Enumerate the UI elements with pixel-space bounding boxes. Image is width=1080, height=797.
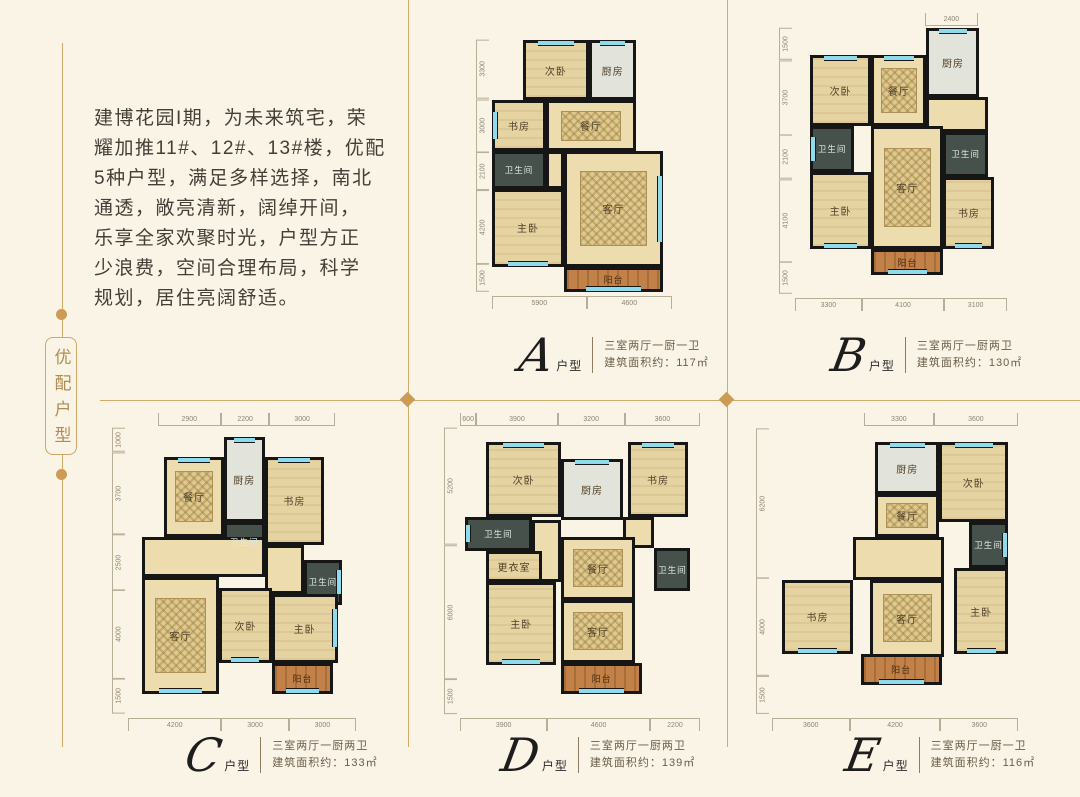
dim-label xyxy=(772,413,864,426)
plan-letter-suffix: 户型 xyxy=(542,757,568,774)
floorplan-a: 次卧厨房书房餐厅卫生间主卧客厅阳台33003000210042001500590… xyxy=(492,40,672,292)
room-bath: 卫生间 xyxy=(969,522,1008,568)
dim-label: 3300 xyxy=(795,298,862,311)
room-living: 客厅 xyxy=(564,151,663,267)
side-tag: 优配户型 xyxy=(45,337,77,455)
room-hall xyxy=(265,545,304,594)
room-bath: 卫生间 xyxy=(465,517,532,551)
room-kitchen: 厨房 xyxy=(224,437,265,523)
intro-line-6: 少浪费，空间合理布局，科学 xyxy=(94,254,374,284)
dim-label: 3300 xyxy=(476,40,489,99)
room-label: 卫生间 xyxy=(818,143,847,155)
room-label: 厨房 xyxy=(581,482,603,497)
window-strip xyxy=(810,137,816,161)
room-bed: 主卧 xyxy=(954,568,1008,654)
dim-label: 4100 xyxy=(779,179,792,262)
room-bath: 卫生间 xyxy=(943,132,988,177)
plan-rooms-spec: 三室两厅一厨一卫 xyxy=(604,338,709,355)
room-label: 阳台 xyxy=(603,273,623,286)
window-strip xyxy=(159,688,202,694)
floorplan-e: 厨房次卧餐厅卫生间书房客厅主卧阳台62004000150036004200360… xyxy=(772,428,1018,714)
dim-label: 600 xyxy=(460,413,476,426)
room-dining: 餐厅 xyxy=(871,55,926,127)
plan-letter: D xyxy=(498,734,542,776)
dim-label: 4100 xyxy=(862,298,944,311)
window-strip xyxy=(332,609,338,647)
dim-label: 1500 xyxy=(779,262,792,294)
dim-label: 1500 xyxy=(756,676,769,714)
room-label: 阳台 xyxy=(592,672,612,685)
plan-label-a: A户型三室两厅一厨一卫建筑面积约：117㎡ xyxy=(520,334,709,376)
room-label: 书房 xyxy=(647,472,669,487)
room-bath: 卫生间 xyxy=(492,151,546,189)
dim-label: 2200 xyxy=(650,718,700,731)
plan-letter-suffix: 户型 xyxy=(869,357,895,374)
dim-label: 4000 xyxy=(112,590,125,679)
room-label: 主卧 xyxy=(510,616,532,631)
intro-line-4: 通透，敞亮清新，阔绰开间， xyxy=(94,194,374,224)
plan-label-divider xyxy=(260,737,261,773)
room-bed: 次卧 xyxy=(486,442,560,516)
room-label: 次卧 xyxy=(513,472,535,487)
dims-left-e: 620040001500 xyxy=(756,428,769,714)
window-strip xyxy=(955,442,993,448)
dims-left-b: 15003700210041001500 xyxy=(779,28,792,294)
dim-label: 4200 xyxy=(476,190,489,264)
room-living: 客厅 xyxy=(871,126,943,248)
room-bed: 书房 xyxy=(782,580,853,654)
room-bed: 书房 xyxy=(492,100,546,150)
dims-bottom-b: 330041003100 xyxy=(795,298,1007,311)
room-bed: 书房 xyxy=(628,442,688,516)
dim-label: 2900 xyxy=(158,413,221,426)
room-living: 客厅 xyxy=(142,577,220,694)
brochure-page: 优配户型 建博花园I期，为未来筑宅，荣耀加推11#、12#、13#楼，优配5种户… xyxy=(0,0,1080,797)
window-strip xyxy=(600,40,624,46)
plan-label-divider xyxy=(905,337,906,373)
room-label: 书房 xyxy=(283,493,305,508)
window-strip xyxy=(178,457,210,463)
room-label: 餐厅 xyxy=(587,561,609,576)
room-bed: 次卧 xyxy=(523,40,590,100)
divider-horizontal xyxy=(100,400,1080,401)
dims-bottom-c: 420030003000 xyxy=(128,718,356,731)
plan-specs: 三室两厅一厨两卫建筑面积约：139㎡ xyxy=(590,738,695,772)
dims-bottom-e: 360042003600 xyxy=(772,718,1018,731)
dim-label: 3200 xyxy=(558,413,625,426)
dims-bottom-d: 390046002200 xyxy=(460,718,700,731)
room-bath: 卫生间 xyxy=(654,548,690,591)
room-label: 书房 xyxy=(958,205,980,220)
room-hall xyxy=(853,537,944,580)
plan-area-spec: 建筑面积约：117㎡ xyxy=(604,355,709,372)
floorplan-c: 餐厅厨房书房卫生间卫生间客厅次卧主卧阳台10003700250040001500… xyxy=(128,428,356,714)
window-strip xyxy=(579,688,624,694)
dim-label: 4600 xyxy=(587,296,672,309)
window-strip xyxy=(879,679,924,685)
dim-label: 3900 xyxy=(476,413,557,426)
divider-vertical-left xyxy=(408,0,409,747)
plan-rooms-spec: 三室两厅一厨两卫 xyxy=(590,738,695,755)
room-label: 阳台 xyxy=(292,672,312,685)
room-label: 阳台 xyxy=(891,663,911,676)
plan-label-divider xyxy=(919,737,920,773)
dim-label: 2100 xyxy=(476,152,489,190)
room-label: 厨房 xyxy=(896,461,918,476)
plan-label-divider xyxy=(578,737,579,773)
window-strip xyxy=(884,55,913,61)
floorplan-d: 次卧厨房书房卫生间更衣室餐厅卫生间主卧客厅阳台52006000150039004… xyxy=(460,428,700,714)
dim-label: 3000 xyxy=(476,99,489,152)
dim-label: 6000 xyxy=(444,545,457,679)
intro-line-7: 规划，居住亮阔舒适。 xyxy=(94,284,374,314)
window-strip xyxy=(642,442,674,448)
room-label: 阳台 xyxy=(897,256,917,269)
intro-line-3: 5种户型，满足多样选择，南北 xyxy=(94,164,374,194)
plan-rooms-spec: 三室两厅一厨两卫 xyxy=(917,338,1022,355)
room-balcony: 阳台 xyxy=(861,654,942,685)
window-strip xyxy=(1002,533,1008,557)
plan-label-b: B户型三室两厅一厨两卫建筑面积约：130㎡ xyxy=(832,334,1022,376)
plan-label-c: C户型三室两厅一厨两卫建筑面积约：133㎡ xyxy=(186,734,378,776)
plan-specs: 三室两厅一厨两卫建筑面积约：133㎡ xyxy=(272,738,377,772)
dims-top-e: 33003600 xyxy=(772,413,1018,426)
dim-label: 2200 xyxy=(221,413,270,426)
window-strip xyxy=(657,176,663,242)
room-label: 厨房 xyxy=(602,63,624,78)
dim-label: 2400 xyxy=(925,13,977,26)
plan-letter-suffix: 户型 xyxy=(224,757,250,774)
intro-line-2: 耀加推11#、12#、13#楼，优配 xyxy=(94,134,374,164)
window-strip xyxy=(824,243,857,249)
dim-label: 5900 xyxy=(492,296,587,309)
window-strip xyxy=(508,261,548,267)
plan-letter-suffix: 户型 xyxy=(883,757,909,774)
room-dining: 餐厅 xyxy=(164,457,223,537)
room-living: 客厅 xyxy=(870,580,944,657)
room-bed: 更衣室 xyxy=(486,551,541,582)
room-label: 卫生间 xyxy=(309,576,338,588)
room-kitchen: 厨房 xyxy=(589,40,636,100)
dim-label: 3700 xyxy=(779,60,792,135)
intro-text: 建博花园I期，为未来筑宅，荣耀加推11#、12#、13#楼，优配5种户型，满足多… xyxy=(94,104,374,314)
plan-letter: C xyxy=(182,734,225,776)
room-bed: 次卧 xyxy=(219,588,271,662)
room-label: 厨房 xyxy=(942,55,964,70)
dim-label: 1000 xyxy=(112,428,125,452)
window-strip xyxy=(336,570,342,594)
room-label: 客厅 xyxy=(896,180,918,195)
dim-label: 3000 xyxy=(289,718,356,731)
dim-label: 5200 xyxy=(444,428,457,545)
dims-bottom-a: 59004600 xyxy=(492,296,672,309)
room-label: 餐厅 xyxy=(580,118,602,133)
room-label: 卫生间 xyxy=(658,564,687,576)
dim-label: 1500 xyxy=(476,264,489,292)
room-label: 次卧 xyxy=(963,475,985,490)
room-living: 客厅 xyxy=(561,600,635,663)
dim-label: 1500 xyxy=(444,679,457,714)
window-strip xyxy=(278,457,310,463)
dim-label: 4600 xyxy=(547,718,650,731)
room-dining: 餐厅 xyxy=(546,100,636,150)
dims-left-a: 33003000210042001500 xyxy=(476,40,489,292)
room-bed: 书房 xyxy=(943,177,994,249)
window-strip xyxy=(955,243,982,249)
room-label: 卫生间 xyxy=(230,536,259,548)
room-label: 餐厅 xyxy=(888,83,910,98)
window-strip xyxy=(575,459,609,465)
ornament-dot-top xyxy=(56,309,67,320)
floorplan-b: 厨房次卧餐厅卫生间客厅卫生间主卧书房阳台15003700210041001500… xyxy=(795,28,1007,294)
dim-label: 3000 xyxy=(269,413,334,426)
dim-label xyxy=(335,413,356,426)
room-label: 客厅 xyxy=(896,611,918,626)
plan-letter: B xyxy=(828,334,869,376)
room-label: 客厅 xyxy=(603,201,625,216)
plan-letter-suffix: 户型 xyxy=(556,357,582,374)
room-kitchen: 厨房 xyxy=(561,459,623,519)
plan-area-spec: 建筑面积约：133㎡ xyxy=(272,755,377,772)
intro-line-1: 建博花园I期，为未来筑宅，荣 xyxy=(94,104,374,134)
window-strip xyxy=(231,657,259,663)
room-kitchen: 厨房 xyxy=(875,442,939,493)
room-bath: 卫生间 xyxy=(810,126,855,171)
window-strip xyxy=(286,688,319,694)
dim-label: 2100 xyxy=(779,135,792,179)
dim-label: 3600 xyxy=(625,413,700,426)
room-label: 餐厅 xyxy=(183,489,205,504)
window-strip xyxy=(888,269,928,275)
dim-label xyxy=(128,413,158,426)
room-label: 次卧 xyxy=(830,83,852,98)
room-bed: 主卧 xyxy=(492,189,564,267)
dim-label: 3100 xyxy=(944,298,1007,311)
plan-area-spec: 建筑面积约：116㎡ xyxy=(931,755,1036,772)
room-label: 主卧 xyxy=(517,220,539,235)
plan-letter: A xyxy=(516,334,557,376)
window-strip xyxy=(492,112,498,139)
window-strip xyxy=(503,442,544,448)
window-strip xyxy=(586,286,642,292)
window-strip xyxy=(824,55,857,61)
room-label: 客厅 xyxy=(169,628,191,643)
plan-label-divider xyxy=(592,337,593,373)
room-bed: 主卧 xyxy=(486,582,556,665)
plan-specs: 三室两厅一厨一卫建筑面积约：117㎡ xyxy=(604,338,709,372)
room-label: 次卧 xyxy=(545,63,567,78)
dim-label xyxy=(978,13,1007,26)
dims-top-d: 600390032003600 xyxy=(460,413,700,426)
room-bed: 次卧 xyxy=(939,442,1008,522)
room-balcony: 阳台 xyxy=(871,249,943,276)
plan-area-spec: 建筑面积约：139㎡ xyxy=(590,755,695,772)
dim-label: 1500 xyxy=(779,28,792,60)
room-label: 卫生间 xyxy=(974,539,1003,551)
divider-diamond-right xyxy=(719,392,735,408)
room-kitchen: 厨房 xyxy=(926,28,979,97)
room-label: 卫生间 xyxy=(505,164,534,176)
plan-label-d: D户型三室两厅一厨两卫建筑面积约：139㎡ xyxy=(502,734,695,776)
dim-label: 3700 xyxy=(112,452,125,534)
dims-top-c: 290022003000 xyxy=(128,413,356,426)
plan-specs: 三室两厅一厨两卫建筑面积约：130㎡ xyxy=(917,338,1022,372)
plan-letter: E xyxy=(842,734,883,776)
intro-line-5: 乐享全家欢聚时光，户型方正 xyxy=(94,224,374,254)
room-bed: 次卧 xyxy=(810,55,871,127)
plan-rooms-spec: 三室两厅一厨一卫 xyxy=(931,738,1036,755)
divider-vertical-right xyxy=(727,0,728,747)
dim-label: 1500 xyxy=(112,679,125,714)
room-dining: 餐厅 xyxy=(875,494,939,537)
window-strip xyxy=(538,40,574,46)
dim-label: 3600 xyxy=(934,413,1018,426)
dim-label: 3600 xyxy=(940,718,1018,731)
room-balcony: 阳台 xyxy=(272,663,334,694)
divider-diamond-left xyxy=(400,392,416,408)
window-strip xyxy=(967,648,996,654)
room-bed: 主卧 xyxy=(272,594,338,663)
plan-rooms-spec: 三室两厅一厨两卫 xyxy=(272,738,377,755)
window-strip xyxy=(890,442,925,448)
dims-left-d: 520060001500 xyxy=(444,428,457,714)
plan-specs: 三室两厅一厨一卫建筑面积约：116㎡ xyxy=(931,738,1036,772)
room-dining: 餐厅 xyxy=(561,537,635,600)
plan-area-spec: 建筑面积约：130㎡ xyxy=(917,355,1022,372)
dims-top-b: 2400 xyxy=(795,13,1007,26)
window-strip xyxy=(502,659,540,665)
dim-label: 3300 xyxy=(864,413,934,426)
dim-label: 6200 xyxy=(756,428,769,578)
plan-label-e: E户型三室两厅一厨一卫建筑面积约：116㎡ xyxy=(846,734,1035,776)
ornament-dot-bottom xyxy=(56,469,67,480)
window-strip xyxy=(465,525,471,542)
room-hall xyxy=(546,151,564,189)
dim-label: 3000 xyxy=(221,718,288,731)
window-strip xyxy=(234,437,255,443)
room-bed: 书房 xyxy=(265,457,324,546)
dim-label: 2500 xyxy=(112,534,125,590)
dim-label: 4000 xyxy=(756,578,769,676)
dim-label: 3600 xyxy=(772,718,850,731)
room-label: 主卧 xyxy=(294,621,316,636)
dims-left-c: 10003700250040001500 xyxy=(112,428,125,714)
window-strip xyxy=(798,648,837,654)
room-label: 餐厅 xyxy=(896,508,918,523)
room-label: 厨房 xyxy=(233,472,255,487)
room-label: 书房 xyxy=(508,118,530,133)
room-balcony: 阳台 xyxy=(564,267,663,292)
room-label: 卫生间 xyxy=(484,528,513,540)
window-strip xyxy=(939,28,967,34)
room-bed: 主卧 xyxy=(810,172,871,249)
room-label: 更衣室 xyxy=(497,559,530,574)
room-label: 书房 xyxy=(806,609,828,624)
dim-label xyxy=(795,13,925,26)
room-label: 主卧 xyxy=(830,203,852,218)
room-label: 次卧 xyxy=(234,618,256,633)
room-label: 主卧 xyxy=(970,604,992,619)
room-label: 客厅 xyxy=(587,624,609,639)
room-balcony: 阳台 xyxy=(561,663,643,694)
room-label: 卫生间 xyxy=(951,148,980,160)
